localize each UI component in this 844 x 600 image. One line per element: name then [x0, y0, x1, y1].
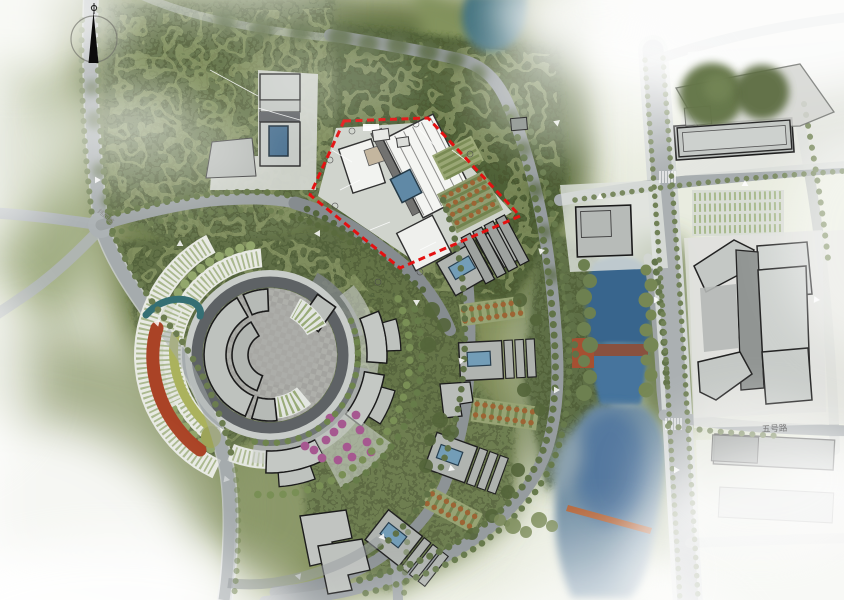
svg-text:五号路: 五号路	[762, 423, 788, 434]
